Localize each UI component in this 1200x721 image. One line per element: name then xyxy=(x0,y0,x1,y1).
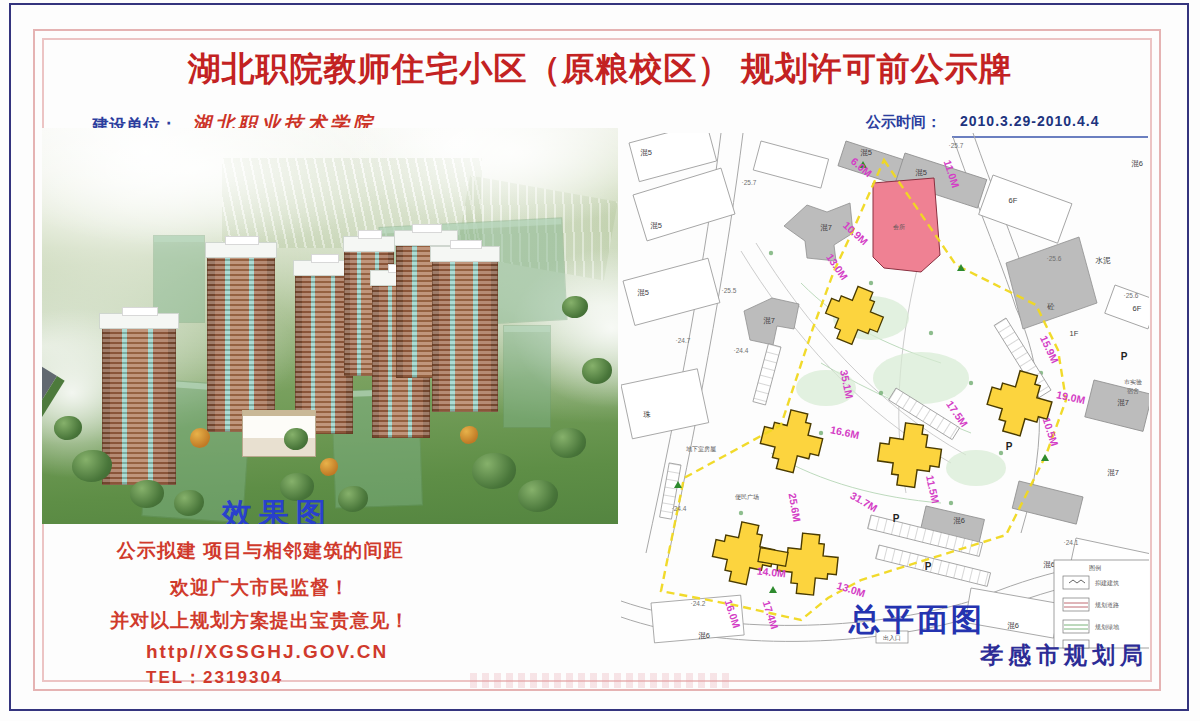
svg-text:混6: 混6 xyxy=(698,631,710,640)
svg-text:混5: 混5 xyxy=(650,221,662,230)
svg-text:13.0M: 13.0M xyxy=(836,579,868,600)
svg-text:混7: 混7 xyxy=(1117,398,1129,407)
svg-text:6F: 6F xyxy=(1009,196,1018,205)
svg-text:·25.5: ·25.5 xyxy=(722,287,737,294)
svg-text:图例: 图例 xyxy=(1089,565,1101,572)
svg-text:·24.2: ·24.2 xyxy=(691,600,706,607)
svg-text:规划道路: 规划道路 xyxy=(1095,601,1119,609)
aerial-rendering-image: 效果图 xyxy=(42,128,618,524)
tree xyxy=(550,428,586,458)
svg-text:·24.7: ·24.7 xyxy=(676,337,691,344)
svg-text:拟建建筑: 拟建建筑 xyxy=(1095,579,1119,587)
svg-text:混7: 混7 xyxy=(820,223,832,232)
svg-text:宿舍: 宿舍 xyxy=(1127,387,1139,395)
svg-text:市实验: 市实验 xyxy=(1124,378,1142,385)
svg-text:·24.4: ·24.4 xyxy=(672,505,687,512)
faint-watermark xyxy=(470,673,732,688)
svg-text:混5: 混5 xyxy=(860,148,872,157)
tower-roof xyxy=(205,242,278,258)
svg-text:17.4M: 17.4M xyxy=(761,599,782,631)
svg-text:混6: 混6 xyxy=(1131,159,1143,168)
rendering-caption: 效果图 xyxy=(222,494,333,524)
tower-roof xyxy=(394,230,458,246)
notice-line-opinions: 并对以上规划方案提出宝贵意见！ xyxy=(88,608,432,634)
svg-text:便民广场: 便民广场 xyxy=(735,494,759,501)
svg-text:6F: 6F xyxy=(1133,304,1142,313)
svg-text:混6: 混6 xyxy=(1043,560,1055,569)
svg-text:地下室房屋: 地下室房屋 xyxy=(686,445,716,452)
svg-text:混5: 混5 xyxy=(637,288,649,297)
svg-text:11.5M: 11.5M xyxy=(924,474,942,505)
svg-text:砼: 砼 xyxy=(1046,302,1055,311)
svg-text:·24.4: ·24.4 xyxy=(734,347,749,354)
svg-text:混5: 混5 xyxy=(640,148,652,157)
svg-text:混5: 混5 xyxy=(915,168,927,177)
svg-text:混6: 混6 xyxy=(1007,621,1019,630)
svg-text:13.0M: 13.0M xyxy=(824,251,851,282)
autumn-tree xyxy=(460,426,478,444)
existing-buildings-gray xyxy=(744,141,1149,551)
svg-text:16.6M: 16.6M xyxy=(829,423,860,441)
ghost-building-block xyxy=(154,236,204,322)
notice-website: http//XGSGHJ.GOV.CN xyxy=(146,641,388,663)
tower-roof xyxy=(430,246,500,262)
svg-text:水泥: 水泥 xyxy=(1095,256,1112,265)
residential-tower xyxy=(207,252,275,432)
publish-time-label: 公示时间： xyxy=(866,113,941,132)
tree xyxy=(338,486,368,512)
svg-text:混7: 混7 xyxy=(763,316,775,325)
svg-text:珠: 珠 xyxy=(643,410,651,419)
svg-text:·25.6: ·25.6 xyxy=(1124,292,1139,299)
tower-roof xyxy=(343,236,396,252)
svg-text:·25.7: ·25.7 xyxy=(949,142,964,149)
tree xyxy=(472,453,516,489)
svg-text:规划绿地: 规划绿地 xyxy=(1095,623,1120,631)
svg-text:·25.6: ·25.6 xyxy=(1047,255,1062,262)
publish-time-value: 2010.3.29-2010.4.4 xyxy=(960,113,1099,129)
svg-text:P: P xyxy=(925,561,932,572)
ghost-building-block xyxy=(504,326,550,427)
notice-telephone: TEL：2319304 xyxy=(146,666,283,689)
planning-bureau-name: 孝感市规划局 xyxy=(980,640,1148,671)
site-plan-map: 6.0M 10.9M 11.0M 13.0M 35.1M 16.6M 17.5M… xyxy=(621,133,1149,661)
svg-text:14.0M: 14.0M xyxy=(756,565,787,580)
plan-caption: 总平面图 xyxy=(848,602,985,637)
tower-roof xyxy=(99,313,178,329)
svg-text:混6: 混6 xyxy=(953,516,965,525)
svg-text:·24.1: ·24.1 xyxy=(1064,539,1079,546)
notice-board: 湖北职院教师住宅小区（原粮校区） 规划许可前公示牌 建设单位： 湖北职业技术学院… xyxy=(0,0,1200,721)
svg-text:·25.7: ·25.7 xyxy=(742,179,757,186)
svg-text:P: P xyxy=(893,513,900,524)
notice-line-supervise: 欢迎广大市民监督！ xyxy=(88,575,432,601)
svg-text:P: P xyxy=(1121,351,1128,362)
svg-text:19.0M: 19.0M xyxy=(1055,388,1086,406)
notice-line-spacing: 公示拟建 项目与相邻建筑的间距 xyxy=(88,538,432,564)
residential-tower xyxy=(102,323,176,485)
residential-tower xyxy=(432,256,498,412)
page-title: 湖北职院教师住宅小区（原粮校区） 规划许可前公示牌 xyxy=(60,47,1140,92)
map-legend: 图例 拟建建筑 规划道路 规划绿地 xyxy=(1054,560,1149,648)
svg-text:会所: 会所 xyxy=(893,224,905,230)
svg-text:1F: 1F xyxy=(1070,329,1079,338)
tree xyxy=(518,480,558,512)
svg-text:P: P xyxy=(1006,441,1013,452)
svg-text:混7: 混7 xyxy=(1107,468,1119,477)
svg-text:25.6M: 25.6M xyxy=(786,492,803,523)
